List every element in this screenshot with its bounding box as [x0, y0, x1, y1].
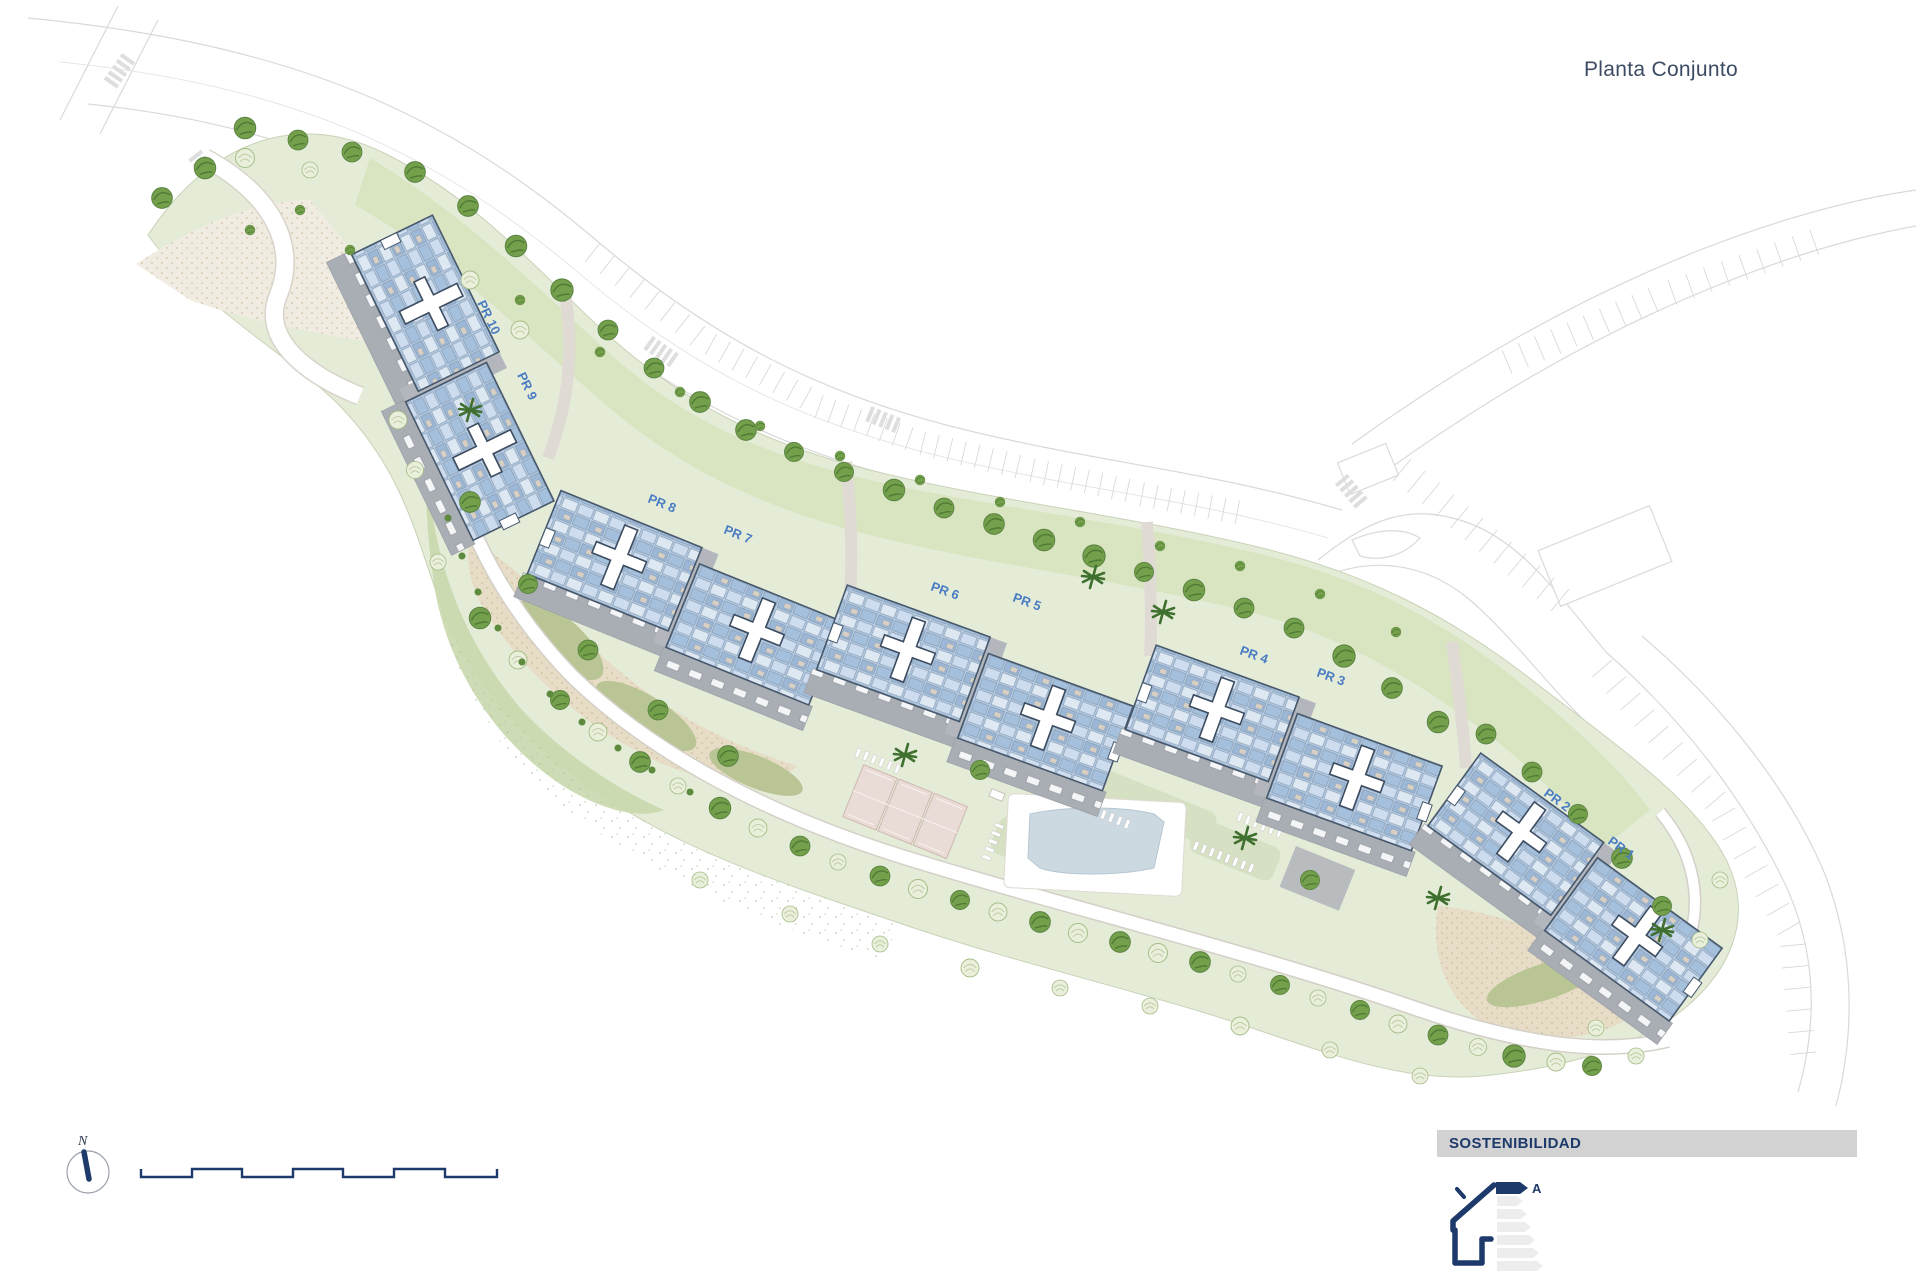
tree-icon	[1235, 561, 1245, 571]
tree-icon	[469, 607, 490, 628]
tree-icon	[519, 575, 538, 594]
tree-outline-icon	[1230, 966, 1246, 982]
tree-icon	[870, 866, 890, 886]
tree-icon	[1391, 627, 1401, 637]
tree-icon	[295, 205, 305, 215]
tree-outline-icon	[1412, 1068, 1428, 1084]
tree-icon	[152, 188, 173, 209]
tree-icon	[630, 752, 651, 773]
tree-icon	[883, 479, 904, 500]
north-label: N	[77, 1134, 88, 1149]
bush-icon	[475, 589, 482, 596]
tree-icon	[505, 235, 526, 256]
energy-efficiency-house-icon: A	[1453, 1181, 1543, 1271]
tree-icon	[345, 245, 355, 255]
tree-icon	[1428, 1025, 1448, 1045]
sustainability-header-label: SOSTENIBILIDAD	[1437, 1130, 1581, 1157]
tree-outline-icon	[511, 321, 529, 339]
tree-outline-icon	[1547, 1053, 1565, 1071]
tree-outline-icon	[236, 149, 255, 168]
tree-icon	[460, 492, 481, 513]
tree-outline-icon	[302, 162, 318, 178]
tree-outline-icon	[1142, 998, 1158, 1014]
tree-icon	[1155, 541, 1165, 551]
tree-icon	[971, 761, 990, 780]
tree-icon	[995, 497, 1005, 507]
tree-outline-icon	[1628, 1048, 1644, 1064]
tree-outline-icon	[389, 411, 407, 429]
house-chimney	[1457, 1189, 1464, 1197]
tree-icon	[718, 746, 739, 767]
tree-icon	[1183, 579, 1204, 600]
tree-outline-icon	[830, 854, 846, 870]
tree-outline-icon	[407, 462, 424, 479]
tree-icon	[1083, 545, 1105, 567]
tree-outline-icon	[1149, 944, 1168, 963]
tree-outline-icon	[430, 554, 446, 570]
tree-icon	[515, 295, 525, 305]
tree-icon	[1522, 762, 1542, 782]
tree-icon	[984, 514, 1005, 535]
tree-icon	[1135, 563, 1154, 582]
page-title: Planta Conjunto	[1584, 58, 1738, 82]
tree-icon	[790, 836, 810, 856]
tree-outline-icon	[909, 880, 928, 899]
energy-class-a-arrow	[1496, 1182, 1528, 1194]
bush-icon	[649, 767, 656, 774]
tree-icon	[1569, 805, 1588, 824]
tree-icon	[551, 279, 573, 301]
tree-icon	[194, 157, 215, 178]
bush-icon	[687, 789, 694, 796]
tree-outline-icon	[1470, 1039, 1487, 1056]
tree-icon	[598, 320, 618, 340]
tree-icon	[1033, 529, 1054, 550]
tree-icon	[675, 387, 685, 397]
tree-outline-icon	[872, 936, 888, 952]
tree-icon	[1382, 678, 1403, 699]
tree-icon	[648, 700, 668, 720]
tree-outline-icon	[1692, 932, 1708, 948]
tree-icon	[595, 347, 605, 357]
swimming-pool	[1028, 808, 1164, 874]
tree-outline-icon	[1712, 872, 1728, 888]
tree-icon	[934, 498, 954, 518]
sustainability-header-bar: SOSTENIBILIDAD	[1437, 1130, 1857, 1157]
tree-icon	[342, 142, 362, 162]
bush-icon	[459, 553, 466, 560]
tree-outline-icon	[989, 903, 1007, 921]
bush-icon	[579, 719, 586, 726]
tree-icon	[736, 420, 757, 441]
energy-class-label: A	[1532, 1181, 1542, 1196]
tree-icon	[951, 891, 970, 910]
tree-icon	[709, 797, 730, 818]
tree-outline-icon	[670, 778, 686, 794]
tree-icon	[245, 225, 255, 235]
bush-icon	[615, 745, 622, 752]
scale-bar-icon	[141, 1169, 497, 1177]
tree-icon	[785, 443, 804, 462]
tree-icon	[1301, 871, 1320, 890]
tree-icon	[1583, 1057, 1602, 1076]
tree-outline-icon	[1322, 1042, 1338, 1058]
tree-icon	[1234, 598, 1254, 618]
house-outline	[1453, 1185, 1494, 1263]
tree-outline-icon	[1069, 924, 1088, 943]
tree-icon	[1284, 618, 1304, 638]
tree-icon	[1427, 711, 1448, 732]
tree-outline-icon	[692, 872, 708, 888]
tree-icon	[1030, 912, 1051, 933]
tree-icon	[835, 463, 854, 482]
tree-icon	[1075, 517, 1085, 527]
tree-icon	[1351, 1001, 1370, 1020]
bush-icon	[495, 625, 502, 632]
tree-outline-icon	[1231, 1017, 1249, 1035]
tree-outline-icon	[589, 723, 607, 741]
tree-icon	[690, 392, 711, 413]
tree-outline-icon	[961, 959, 979, 977]
tree-icon	[234, 117, 255, 138]
tree-icon	[288, 130, 308, 150]
tree-outline-icon	[1389, 1015, 1407, 1033]
tree-icon	[644, 358, 664, 378]
legend: N	[67, 1134, 497, 1193]
site-plan-page: PR 10 PR 9 PR 8 PR 7 PR 6 PR 5 PR 4 PR 3…	[0, 0, 1920, 1280]
tree-icon	[458, 196, 479, 217]
tree-icon	[1333, 645, 1355, 667]
tree-outline-icon	[1588, 1020, 1604, 1036]
tree-icon	[1315, 589, 1325, 599]
tree-icon	[1653, 897, 1672, 916]
tree-icon	[1110, 932, 1131, 953]
tree-icon	[755, 421, 765, 431]
tree-icon	[915, 475, 925, 485]
tree-outline-icon	[1052, 980, 1068, 996]
bush-icon	[547, 691, 554, 698]
north-arrow-icon: N	[67, 1134, 109, 1193]
tree-icon	[835, 451, 845, 461]
tree-outline-icon	[782, 906, 798, 922]
tree-outline-icon	[461, 271, 479, 289]
tree-icon	[578, 640, 598, 660]
tree-icon	[1476, 724, 1496, 744]
energy-scale-arrows-muted	[1497, 1196, 1543, 1271]
tree-icon	[1271, 976, 1290, 995]
tree-icon	[1503, 1045, 1525, 1067]
tree-outline-icon	[1310, 990, 1326, 1006]
tree-icon	[405, 162, 426, 183]
tree-outline-icon	[749, 819, 767, 837]
bush-icon	[445, 515, 452, 522]
tree-icon	[1190, 952, 1211, 973]
bush-icon	[519, 659, 526, 666]
site-plan-drawing: PR 10 PR 9 PR 8 PR 7 PR 6 PR 5 PR 4 PR 3…	[0, 0, 1920, 1280]
